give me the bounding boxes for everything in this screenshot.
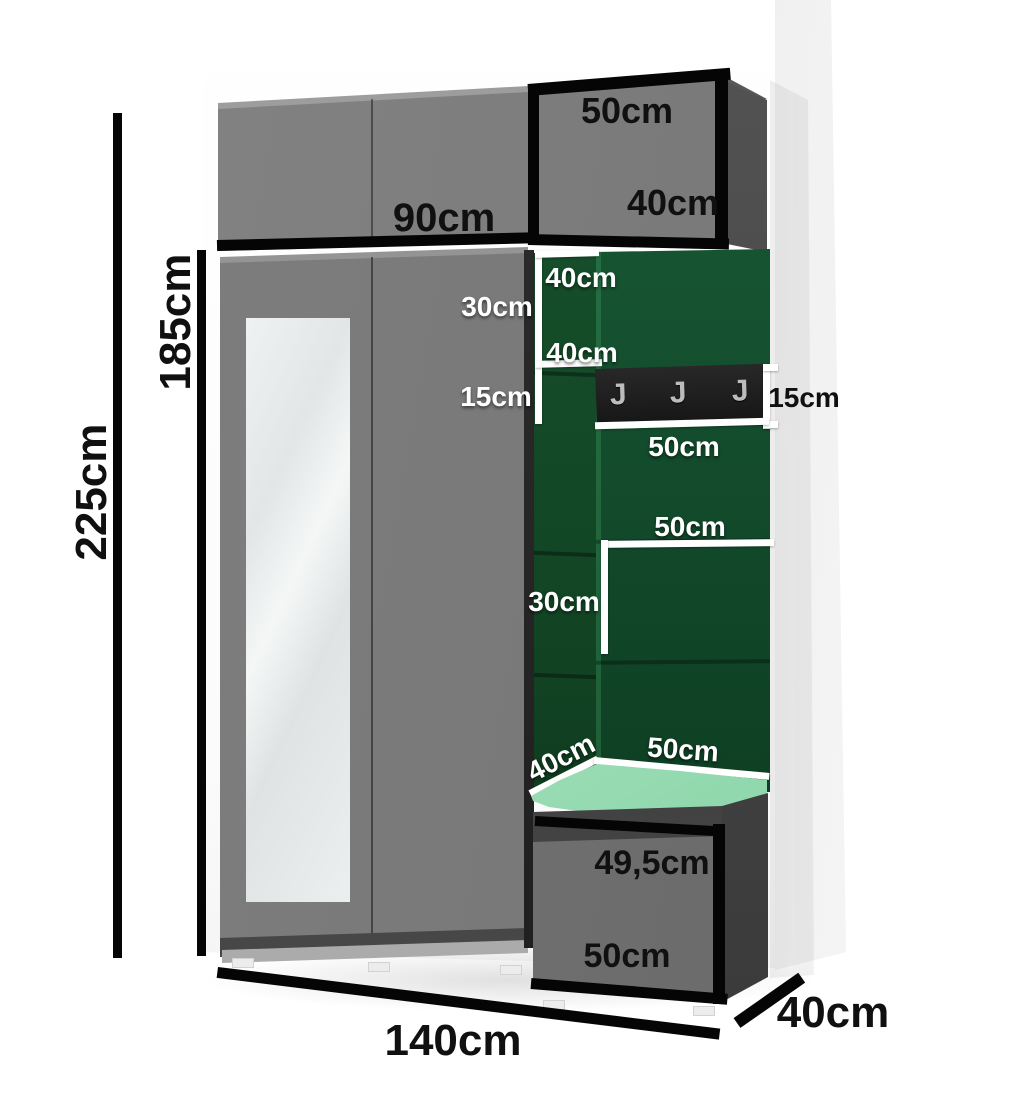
panel-second-height-label: 40cm xyxy=(522,338,642,367)
mirror xyxy=(246,318,350,902)
right-cabinet-depth-label: 40cm xyxy=(583,184,763,222)
furniture-dimension-diagram: 90cm 50cm 40cm J J J 40cm 30cm 40cm 15cm… xyxy=(0,0,1024,1101)
bench-foot xyxy=(693,1006,715,1016)
total-width-label: 140cm xyxy=(343,1018,563,1064)
wardrobe-height-label: 185cm xyxy=(153,212,199,432)
mid-panel-width-label: 50cm xyxy=(630,512,750,541)
right-cabinet-width-label: 50cm xyxy=(537,92,717,130)
gap-lower-label: 15cm xyxy=(436,382,556,411)
bench-width-label: 50cm xyxy=(527,939,727,975)
hook-panel-height-label: 15cm xyxy=(744,383,864,412)
total-depth-label: 40cm xyxy=(733,990,933,1036)
wardrobe-door-gap xyxy=(371,257,373,945)
bench-height-label: 49,5cm xyxy=(552,846,752,882)
wardrobe-foot xyxy=(368,962,390,972)
wardrobe-foot xyxy=(232,958,254,968)
coat-hook-icon: J xyxy=(609,380,627,411)
total-height-label: 225cm xyxy=(69,382,115,602)
panel-top-height-label: 40cm xyxy=(521,263,641,292)
mid-panel-height-label: 30cm xyxy=(504,587,624,616)
wardrobe-foot xyxy=(500,965,522,975)
green-back-corner-highlight xyxy=(596,252,601,792)
gap-upper-label: 30cm xyxy=(437,292,557,321)
coat-hook-icon: J xyxy=(669,378,687,409)
hook-panel-width-label: 50cm xyxy=(624,432,744,461)
hook-panel-right-tick-top xyxy=(763,364,778,371)
